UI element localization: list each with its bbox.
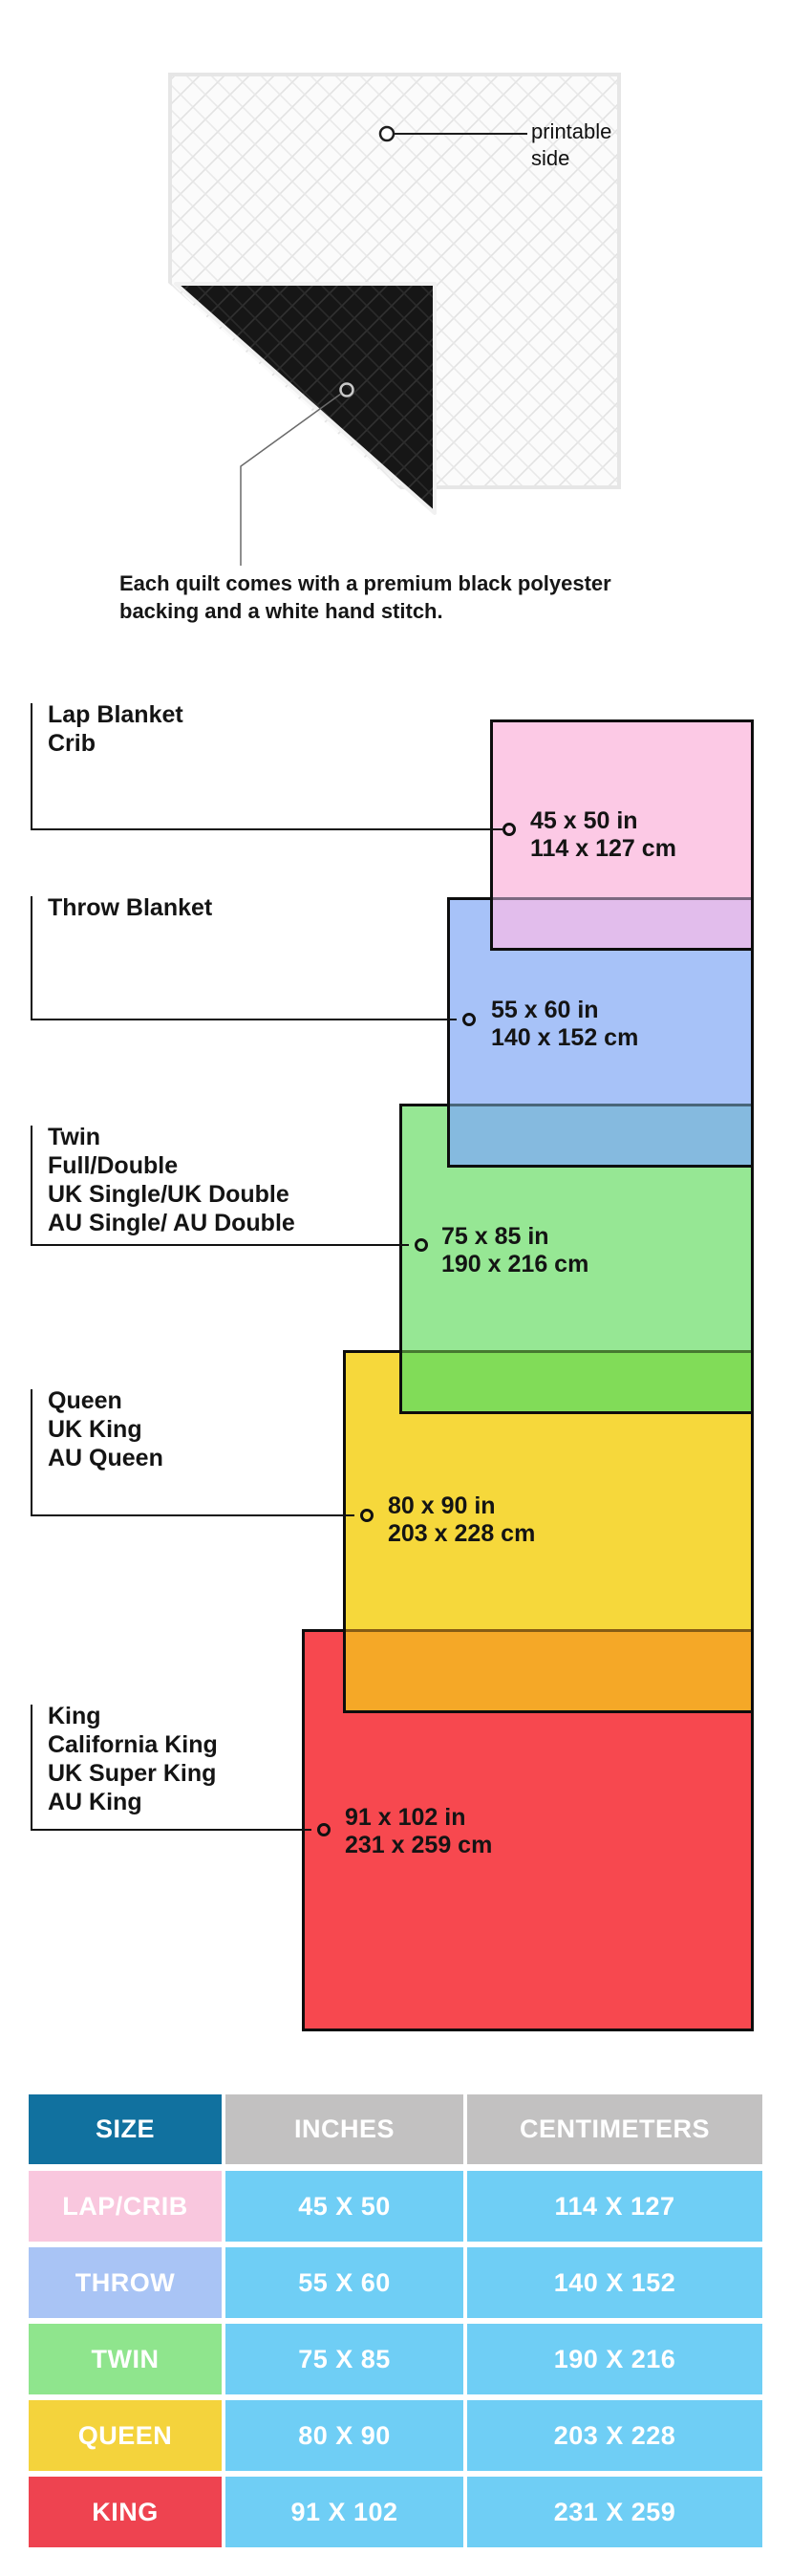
- table-row-queen-size: QUEEN: [29, 2400, 222, 2471]
- queen-dim-cm: 203 x 228 cm: [388, 1520, 535, 1548]
- table-row-lap-cm: 114 X 127: [467, 2171, 762, 2242]
- throw-size-label: Throw Blanket: [48, 893, 212, 922]
- king-size-label: King California King UK Super King AU Ki…: [48, 1702, 218, 1816]
- queen-marker-icon: [360, 1509, 374, 1522]
- twin-label-line4: AU Single/ AU Double: [48, 1209, 295, 1237]
- printable-side-label-line1: printable: [531, 118, 611, 145]
- size-table-header-size: SIZE: [29, 2094, 222, 2164]
- throw-marker-icon: [462, 1013, 476, 1026]
- table-row-twin-size: TWIN: [29, 2324, 222, 2394]
- table-row-throw-cm: 140 X 152: [467, 2247, 762, 2318]
- lap-dim-cm: 114 x 127 cm: [530, 835, 676, 863]
- twin-dim-inches: 75 x 85 in: [441, 1223, 588, 1251]
- throw-dimensions: 55 x 60 in 140 x 152 cm: [491, 997, 638, 1052]
- king-leader-line: [31, 1829, 311, 1831]
- lap-label-vline: [31, 703, 32, 830]
- queen-dim-inches: 80 x 90 in: [388, 1492, 535, 1520]
- king-label-line2: California King: [48, 1730, 218, 1759]
- twin-queen-overlap-band: [402, 1350, 751, 1411]
- table-row-twin-inches: 75 X 85: [225, 2324, 463, 2394]
- size-guide-page: printable side Each quilt comes with a p…: [0, 0, 791, 2576]
- size-table-header-centimeters: CENTIMETERS: [467, 2094, 762, 2164]
- printable-side-label: printable side: [531, 118, 611, 172]
- queen-dimensions: 80 x 90 in 203 x 228 cm: [388, 1492, 535, 1548]
- lap-label-line1: Lap Blanket: [48, 700, 183, 729]
- table-row-queen-cm: 203 X 228: [467, 2400, 762, 2471]
- throw-twin-overlap-band: [450, 1104, 751, 1165]
- lap-dim-inches: 45 x 50 in: [530, 807, 676, 835]
- table-row-queen-inches: 80 X 90: [225, 2400, 463, 2471]
- lap-size-label: Lap Blanket Crib: [48, 700, 183, 758]
- twin-label-line1: Twin: [48, 1123, 295, 1151]
- twin-label-line2: Full/Double: [48, 1151, 295, 1180]
- throw-label-vline: [31, 896, 32, 1020]
- king-dimensions: 91 x 102 in 231 x 259 cm: [345, 1804, 492, 1859]
- lap-throw-overlap-band: [493, 897, 751, 948]
- throw-leader-line: [31, 1019, 457, 1020]
- quilt-caption: Each quilt comes with a premium black po…: [119, 569, 611, 625]
- printable-side-marker-icon: [380, 127, 394, 140]
- twin-leader-line: [31, 1244, 409, 1246]
- table-row-throw-size: THROW: [29, 2247, 222, 2318]
- table-row-king-cm: 231 X 259: [467, 2477, 762, 2547]
- king-label-line3: UK Super King: [48, 1759, 218, 1788]
- size-table-header-inches: INCHES: [225, 2094, 463, 2164]
- lap-marker-icon: [502, 823, 516, 836]
- lap-label-line2: Crib: [48, 729, 183, 758]
- queen-label-vline: [31, 1389, 32, 1516]
- lap-dimensions: 45 x 50 in 114 x 127 cm: [530, 807, 676, 863]
- table-row-lap-inches: 45 X 50: [225, 2171, 463, 2242]
- king-marker-icon: [317, 1823, 331, 1836]
- queen-leader-line: [31, 1514, 354, 1516]
- king-label-vline: [31, 1705, 32, 1831]
- twin-size-label: Twin Full/Double UK Single/UK Double AU …: [48, 1123, 295, 1237]
- twin-dimensions: 75 x 85 in 190 x 216 cm: [441, 1223, 588, 1278]
- throw-label-line1: Throw Blanket: [48, 893, 212, 922]
- twin-label-vline: [31, 1126, 32, 1246]
- size-table: SIZE INCHES CENTIMETERS LAP/CRIB 45 X 50…: [29, 2094, 762, 2547]
- king-label-line4: AU King: [48, 1788, 218, 1816]
- table-row-king-inches: 91 X 102: [225, 2477, 463, 2547]
- table-row-lap-size: LAP/CRIB: [29, 2171, 222, 2242]
- twin-label-line3: UK Single/UK Double: [48, 1180, 295, 1209]
- queen-label-line1: Queen: [48, 1386, 163, 1415]
- twin-dim-cm: 190 x 216 cm: [441, 1251, 588, 1278]
- table-row-throw-inches: 55 X 60: [225, 2247, 463, 2318]
- king-dim-cm: 231 x 259 cm: [345, 1832, 492, 1859]
- throw-dim-cm: 140 x 152 cm: [491, 1024, 638, 1052]
- throw-dim-inches: 55 x 60 in: [491, 997, 638, 1024]
- table-row-twin-cm: 190 X 216: [467, 2324, 762, 2394]
- queen-label-line2: UK King: [48, 1415, 163, 1444]
- printable-side-label-line2: side: [531, 145, 611, 172]
- table-row-king-size: KING: [29, 2477, 222, 2547]
- twin-marker-icon: [415, 1238, 428, 1252]
- queen-size-label: Queen UK King AU Queen: [48, 1386, 163, 1472]
- queen-king-overlap-band: [346, 1629, 751, 1710]
- king-label-line1: King: [48, 1702, 218, 1730]
- king-dim-inches: 91 x 102 in: [345, 1804, 492, 1832]
- quilt-caption-line1: Each quilt comes with a premium black po…: [119, 569, 611, 597]
- lap-leader-line: [31, 828, 502, 830]
- queen-label-line3: AU Queen: [48, 1444, 163, 1472]
- quilt-caption-line2: backing and a white hand stitch.: [119, 597, 611, 625]
